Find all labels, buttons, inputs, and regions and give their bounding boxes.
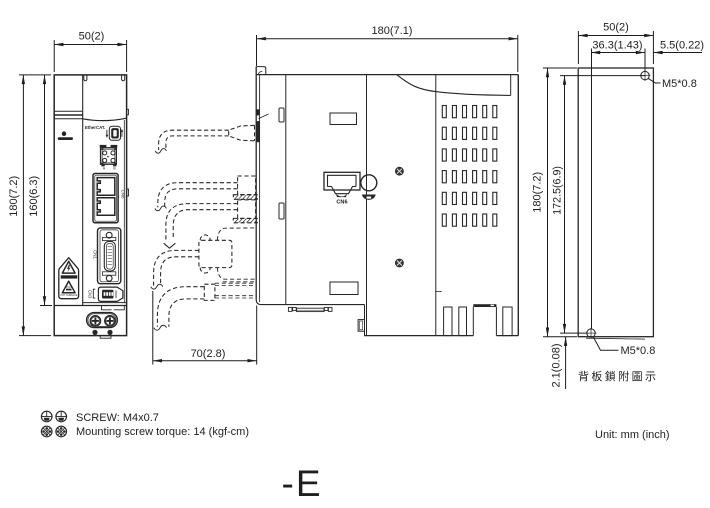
svg-text:CN6: CN6	[121, 190, 126, 199]
svg-text:50(2): 50(2)	[79, 31, 105, 43]
svg-text:2.1(0.08): 2.1(0.08)	[550, 343, 562, 387]
svg-text:EtherCAT.: EtherCAT.	[85, 125, 105, 130]
svg-text:180(7.1): 180(7.1)	[372, 25, 413, 37]
svg-text:SCREW: M4x0.7: SCREW: M4x0.7	[76, 412, 159, 424]
svg-text:CN3: CN3	[88, 290, 93, 299]
svg-text:Mounting screw torque: 14 (kgf: Mounting screw torque: 14 (kgf-cm)	[76, 426, 249, 438]
svg-text:A: A	[103, 167, 106, 171]
svg-text:WARNING: WARNING	[63, 276, 75, 279]
svg-text:Unit: mm (inch): Unit: mm (inch)	[595, 429, 670, 441]
svg-text:180(7.2): 180(7.2)	[531, 172, 543, 213]
svg-text:B: B	[113, 167, 116, 171]
svg-text:CN1: CN1	[93, 250, 98, 259]
svg-text:36.3(1.43): 36.3(1.43)	[592, 40, 642, 52]
svg-text:M5*0.8: M5*0.8	[621, 345, 656, 357]
svg-text:-E: -E	[282, 463, 323, 504]
svg-text:180(7.2): 180(7.2)	[8, 176, 20, 217]
svg-text:160(6.3): 160(6.3)	[28, 176, 40, 217]
svg-text:50(2): 50(2)	[603, 22, 629, 34]
svg-text:5.5(0.22): 5.5(0.22)	[660, 40, 704, 52]
svg-text:HOT SURFACE: HOT SURFACE	[61, 294, 78, 297]
svg-text:M5*0.8: M5*0.8	[662, 78, 697, 90]
svg-text:CN6: CN6	[336, 200, 347, 206]
svg-text:172.5(6.9): 172.5(6.9)	[552, 166, 564, 215]
svg-text:背板鎖附圖示: 背板鎖附圖示	[578, 369, 658, 383]
svg-text:70(2.8): 70(2.8)	[191, 348, 226, 360]
